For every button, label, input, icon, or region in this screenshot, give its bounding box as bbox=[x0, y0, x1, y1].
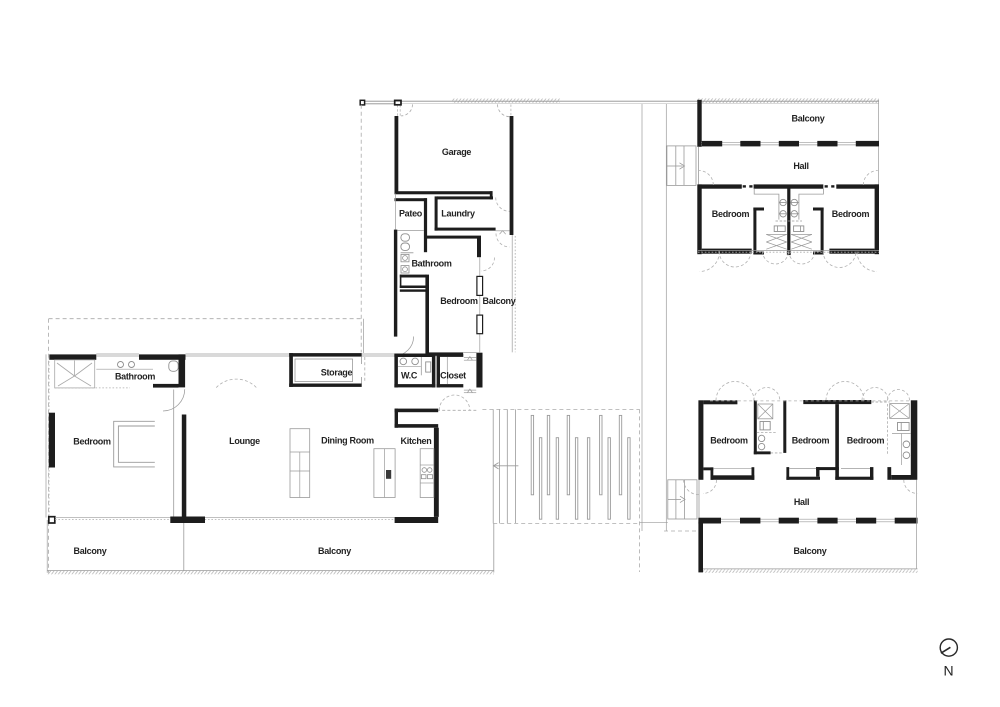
svg-text:Closet: Closet bbox=[440, 370, 466, 380]
svg-text:Bedroom: Bedroom bbox=[712, 209, 750, 219]
svg-text:Dining Room: Dining Room bbox=[321, 435, 374, 445]
svg-text:N: N bbox=[943, 663, 953, 679]
svg-text:Laundry: Laundry bbox=[441, 209, 475, 219]
svg-text:Balcony: Balcony bbox=[74, 546, 107, 556]
svg-text:Storage: Storage bbox=[321, 367, 353, 377]
svg-text:Balcony: Balcony bbox=[794, 546, 827, 556]
svg-text:Garage: Garage bbox=[442, 147, 472, 157]
svg-text:Bedroom: Bedroom bbox=[792, 435, 830, 445]
svg-text:Lounge: Lounge bbox=[229, 436, 260, 446]
svg-text:Hall: Hall bbox=[794, 497, 809, 507]
svg-text:Bedroom: Bedroom bbox=[832, 209, 870, 219]
svg-text:Bedroom: Bedroom bbox=[710, 435, 748, 445]
svg-text:Balcony: Balcony bbox=[792, 114, 825, 124]
svg-text:Balcony: Balcony bbox=[318, 546, 351, 556]
svg-text:Bedroom: Bedroom bbox=[73, 436, 111, 446]
svg-text:Balcony: Balcony bbox=[483, 296, 516, 306]
svg-text:Bedroom: Bedroom bbox=[847, 435, 885, 445]
svg-text:Bathroom: Bathroom bbox=[115, 372, 155, 382]
svg-text:Pateo: Pateo bbox=[399, 209, 423, 219]
svg-text:Hall: Hall bbox=[793, 161, 808, 171]
svg-text:Bathroom: Bathroom bbox=[411, 259, 451, 269]
svg-text:Bedroom: Bedroom bbox=[440, 296, 478, 306]
svg-text:W.C: W.C bbox=[401, 370, 418, 380]
svg-text:Kitchen: Kitchen bbox=[401, 436, 432, 446]
